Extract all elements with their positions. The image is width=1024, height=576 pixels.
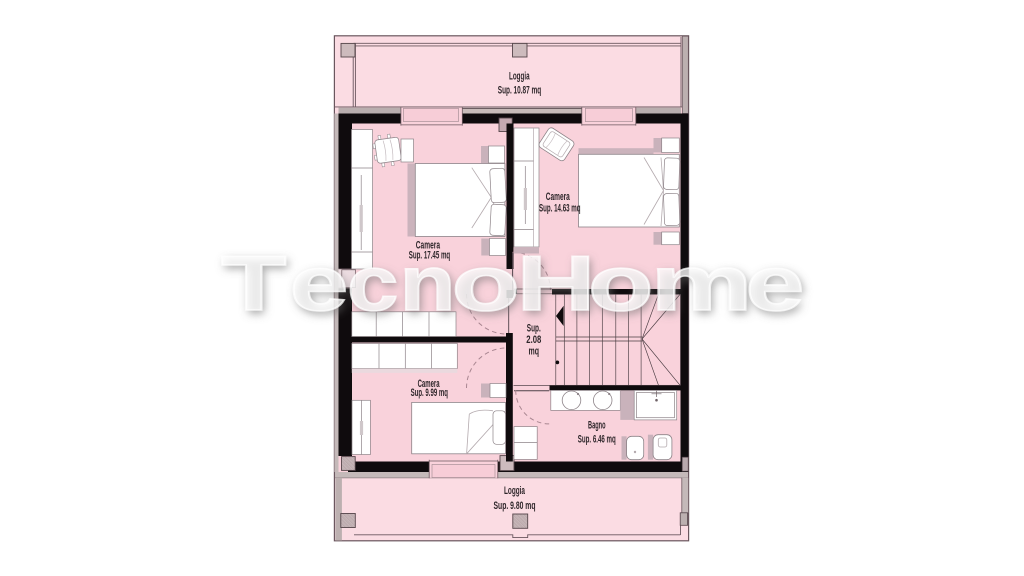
svg-text:o: o (452, 239, 521, 327)
svg-text:o: o (588, 239, 654, 327)
svg-text:Sup. 6.46 mq: Sup. 6.46 mq (578, 434, 616, 446)
svg-text:Bagno: Bagno (588, 420, 606, 432)
svg-text:mq: mq (529, 345, 540, 357)
svg-text:Sup. 14.63 mq: Sup. 14.63 mq (539, 202, 581, 214)
svg-text:m: m (651, 239, 753, 327)
svg-text:e: e (746, 239, 805, 327)
svg-text:Sup. 10.87 mq: Sup. 10.87 mq (498, 84, 542, 96)
svg-text:H: H (517, 239, 596, 327)
svg-text:c: c (347, 239, 399, 327)
svg-text:Sup. 9.99 mq: Sup. 9.99 mq (411, 387, 448, 399)
svg-text:n: n (400, 239, 456, 327)
svg-text:Loggia: Loggia (509, 70, 530, 82)
svg-text:2.08: 2.08 (526, 334, 541, 346)
svg-text:T: T (221, 239, 287, 327)
svg-text:Loggia: Loggia (504, 485, 526, 497)
svg-text:e: e (290, 239, 349, 327)
svg-text:Sup. 9.80 mq: Sup. 9.80 mq (494, 500, 536, 512)
svg-text:Camera: Camera (546, 191, 571, 203)
